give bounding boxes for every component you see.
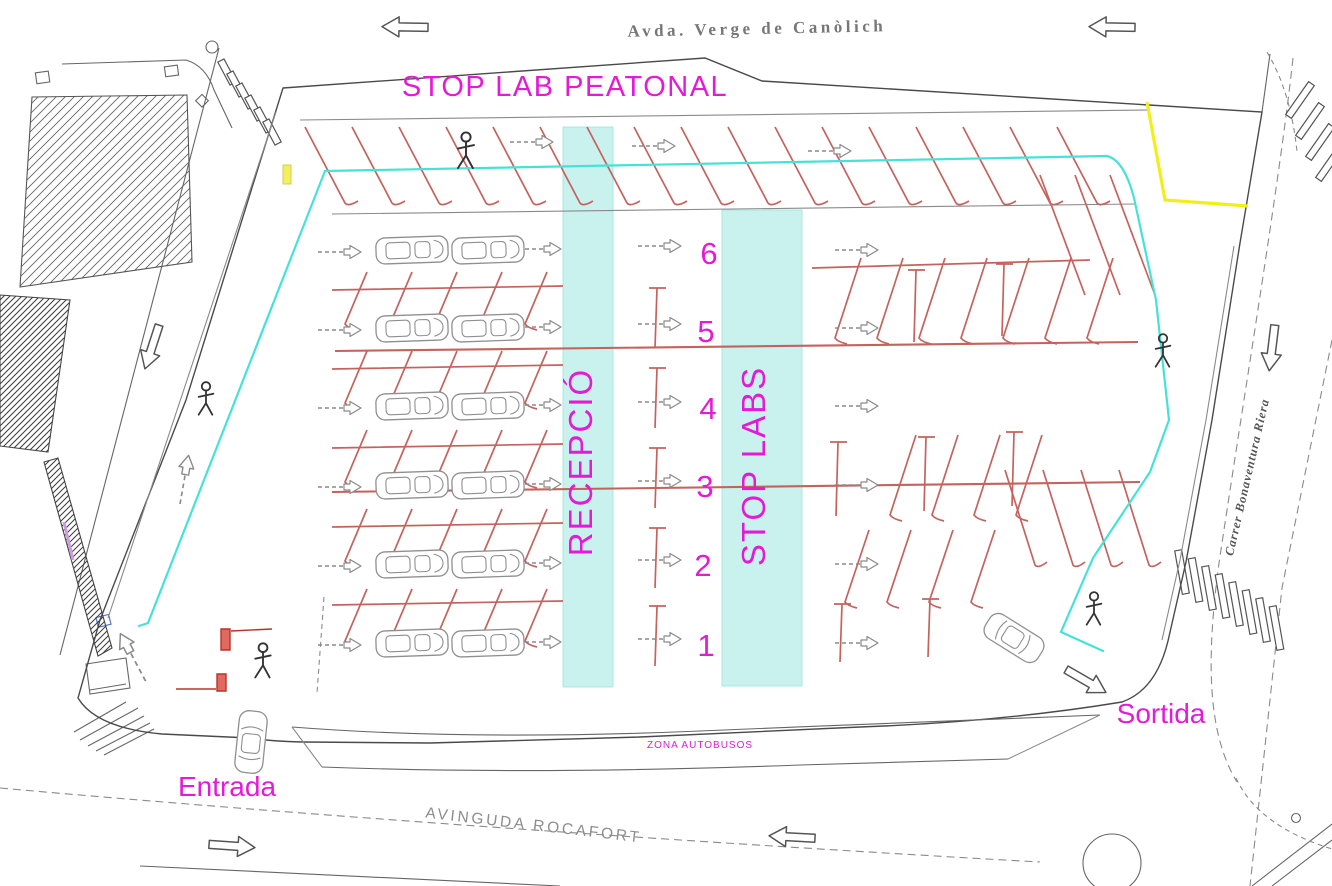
parked-car-icon	[452, 392, 525, 420]
label-recepcio: RECEPCIÓ	[562, 368, 599, 556]
street-name-top: Avda. Verge de Canòlich	[627, 16, 886, 40]
parking-stripe	[963, 127, 1016, 205]
street-furniture	[164, 65, 178, 77]
tree-circle	[206, 41, 218, 53]
parking-divider	[830, 442, 847, 516]
flow-arrow-icon	[638, 318, 681, 331]
street-name-bottom: AVINGUDA ROCAFORT	[424, 805, 642, 847]
flow-arrow-icon	[318, 402, 361, 415]
parking-site-plan-page: Avda. Verge de Canòlich STOP LAB PEATONA…	[0, 0, 1332, 886]
parking-stripe	[1010, 127, 1063, 205]
parking-stripe	[1040, 175, 1085, 295]
parking-stripe	[525, 351, 547, 409]
parking-stripe	[681, 127, 734, 205]
direction-arrow-icon	[382, 17, 428, 38]
direction-arrow-icon	[1089, 17, 1135, 38]
parked-car-icon	[452, 236, 525, 264]
crosswalk-bar	[1229, 582, 1244, 627]
median-hatched-strip	[44, 458, 112, 656]
parking-stripe	[1081, 470, 1123, 566]
lane-number-4: 4	[699, 391, 716, 426]
crosswalk-bar	[1188, 558, 1203, 603]
lane-number-6: 6	[700, 236, 717, 271]
parking-stripe	[932, 435, 958, 521]
parking-stripe	[525, 430, 547, 488]
yellow-mark	[283, 165, 291, 184]
crosswalk-bar	[1242, 590, 1257, 635]
flow-arrow-icon	[835, 244, 878, 257]
direction-arrow-icon	[1259, 324, 1284, 372]
flow-arrow-icon	[808, 145, 851, 158]
crosswalk-bar	[1269, 606, 1284, 651]
parked-car-icon	[452, 471, 525, 499]
flow-arrow-icon	[835, 322, 878, 335]
crosswalk-bar	[1306, 124, 1332, 161]
parked-car-icon	[452, 629, 525, 657]
street-name-right: Carrer Bonaventura Riera	[1222, 397, 1272, 557]
parking-stripe	[1003, 258, 1029, 344]
direction-arrow-icon	[769, 826, 816, 848]
parking-stripe	[345, 272, 367, 330]
lane-number-5: 5	[697, 314, 714, 349]
parking-stripe	[1119, 470, 1161, 566]
parking-stripe	[305, 127, 358, 205]
parking-stripe	[929, 530, 953, 608]
flow-arrow-icon	[638, 633, 681, 646]
parking-stripe	[775, 127, 828, 205]
parking-divider	[834, 604, 851, 662]
parking-stripe	[399, 127, 452, 205]
parking-stripe	[345, 430, 367, 488]
lane-number-1: 1	[697, 628, 714, 663]
parking-stripe	[961, 258, 987, 344]
parked-car-icon	[376, 550, 449, 578]
parking-stripe	[971, 530, 995, 608]
flow-arrow-icon	[318, 560, 361, 573]
direction-arrow-icon	[208, 834, 255, 857]
parking-divider	[649, 368, 666, 428]
roundabout-circle	[1083, 834, 1141, 886]
label-zona-autobusos: ZONA AUTOBUSOS	[647, 740, 753, 751]
parking-divider	[922, 599, 939, 657]
parking-stripe	[1087, 258, 1113, 344]
parked-car-icon	[376, 236, 449, 264]
parking-stripe	[525, 589, 547, 647]
parking-divider	[649, 288, 666, 348]
parking-stripe	[1016, 435, 1042, 521]
flow-arrow-icon	[835, 400, 878, 413]
small-post-circle	[1292, 814, 1301, 823]
street-furniture	[35, 71, 49, 84]
parking-divider	[1006, 432, 1023, 506]
corner-fan-hatch	[74, 702, 154, 755]
parked-car-icon	[376, 629, 449, 657]
building-block-dark	[0, 295, 70, 452]
parking-stripe	[525, 509, 547, 567]
flow-arrow-icon	[318, 324, 361, 337]
parking-stripe	[1043, 470, 1085, 566]
parking-stripe	[525, 272, 547, 330]
parking-stripe	[345, 589, 367, 647]
parking-stripe	[345, 509, 367, 567]
flow-arrow-icon	[113, 630, 153, 685]
pedestrian-icon	[199, 382, 214, 415]
direction-arrow-icon	[1061, 661, 1111, 701]
lane-number-3: 3	[696, 469, 713, 504]
parking-stripe	[916, 127, 969, 205]
parking-divider	[996, 264, 1013, 336]
label-stop-labs: STOP LABS	[735, 366, 772, 566]
crosswalk-bar	[1256, 598, 1271, 643]
flow-arrow-icon	[638, 475, 681, 488]
crosswalk-bar	[1202, 566, 1217, 611]
surrounding-streets	[0, 41, 1332, 886]
parked-car-icon	[376, 471, 449, 499]
label-stop-lab-peatonal: STOP LAB PEATONAL	[402, 71, 728, 103]
flow-arrow-icon	[638, 240, 681, 253]
parking-stripe	[974, 435, 1000, 521]
parking-stripe	[1075, 175, 1120, 295]
parked-car-icon	[376, 392, 449, 420]
pedestrian-icon	[255, 643, 270, 677]
parking-stripe	[877, 258, 903, 344]
flow-arrow-icon	[638, 554, 681, 567]
parking-stripe	[887, 530, 911, 608]
parking-site-plan: Avda. Verge de Canòlich STOP LAB PEATONA…	[0, 0, 1332, 886]
parking-stripe	[845, 530, 869, 608]
flow-arrow-icon	[632, 140, 675, 153]
parking-stripe	[869, 127, 922, 205]
route-lines	[64, 156, 1169, 651]
parking-stripe	[728, 127, 781, 205]
exiting-car-icon	[980, 610, 1047, 667]
parking-divider	[918, 437, 935, 511]
pedestrian-icon	[1087, 592, 1102, 625]
crosswalk-bar	[1296, 103, 1325, 140]
crosswalk-bar	[1215, 574, 1230, 619]
parking-stripe	[345, 351, 367, 409]
parking-stripe	[352, 127, 405, 205]
parked-car-icon	[452, 314, 525, 342]
flow-arrow-icon	[638, 396, 681, 409]
flow-arrow-icon	[173, 454, 196, 505]
parked-car-icon	[452, 550, 525, 578]
flow-arrow-icon	[318, 639, 361, 652]
label-entrada: Entrada	[178, 771, 276, 802]
yellow-markings	[283, 102, 1248, 206]
flow-arrow-icon	[510, 136, 553, 149]
kiosk	[86, 658, 130, 694]
flow-arrow-icon	[318, 246, 361, 259]
label-sortida: Sortida	[1117, 698, 1206, 729]
parking-stripe	[919, 258, 945, 344]
entering-car-icon	[234, 710, 268, 775]
lane-number-2: 2	[694, 548, 711, 583]
parking-divider	[908, 270, 925, 342]
parking-stripe	[835, 258, 861, 344]
pedestrian-icon	[458, 132, 474, 168]
parking-stripe	[1057, 127, 1110, 205]
building-block	[20, 95, 192, 287]
parked-car-icon	[376, 314, 449, 342]
parking-stripe	[822, 127, 875, 205]
parking-stripe	[890, 435, 916, 521]
parking-stripe	[1045, 258, 1071, 344]
